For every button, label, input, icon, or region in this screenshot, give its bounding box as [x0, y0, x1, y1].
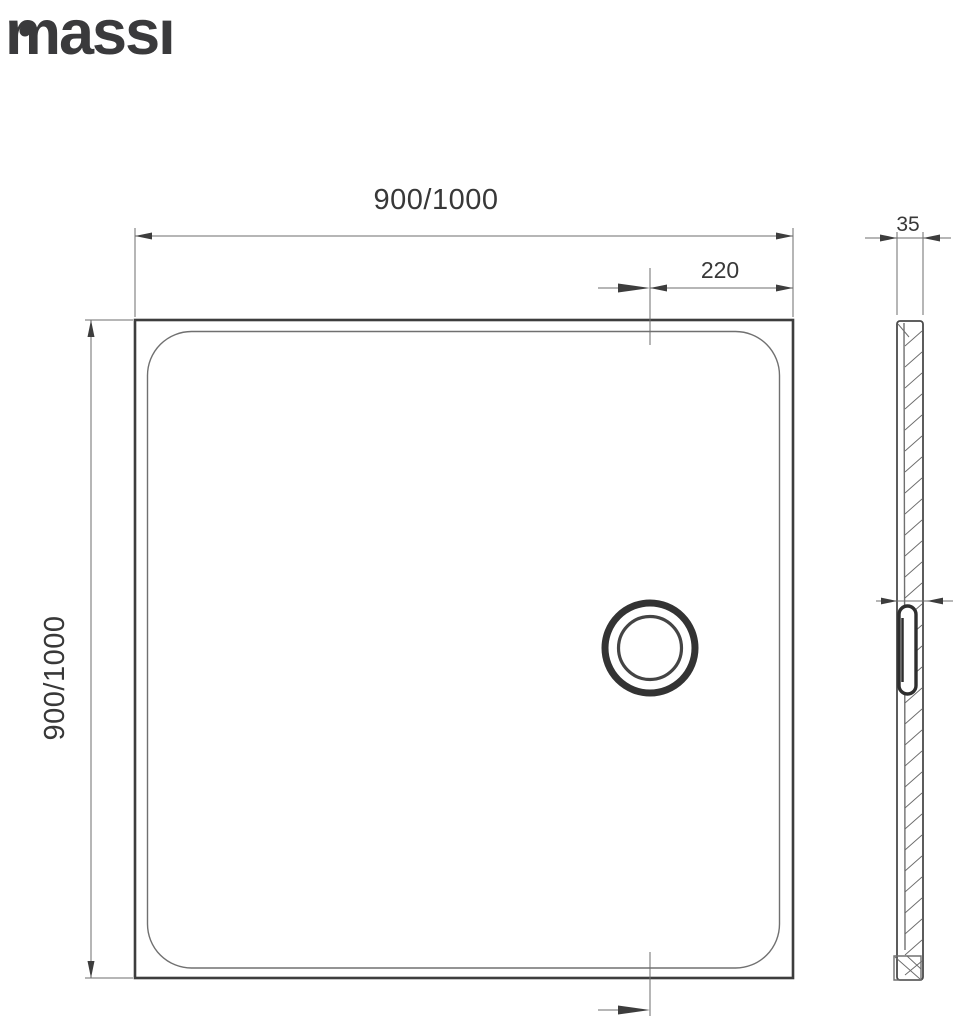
logo-dot-icon [20, 26, 31, 37]
drain-circle [605, 603, 695, 693]
drain-bottom-marker [598, 952, 650, 1016]
drain-offset-label: 220 [701, 257, 739, 283]
drain-level-marker [876, 598, 953, 605]
brand-logo-text: massı [5, 0, 174, 68]
technical-drawing-canvas: massı 900/1000 [0, 0, 953, 1020]
brand-logo: massı [5, 0, 174, 68]
dim-thickness: 35 [865, 213, 951, 315]
left-height-label: 900/1000 [39, 616, 71, 741]
top-view [135, 320, 793, 978]
dim-left-height: 900/1000 [39, 320, 133, 978]
thickness-label: 35 [896, 213, 919, 236]
drain-inner-ring [619, 617, 682, 680]
technical-drawing-page: massı 900/1000 [0, 0, 953, 1020]
top-width-label: 900/1000 [374, 184, 499, 216]
profile-foot [894, 956, 921, 980]
dim-top-width: 900/1000 [135, 184, 793, 317]
tray-inner-basin [148, 332, 780, 969]
side-view: 35 [865, 213, 953, 980]
drain-side-section [899, 606, 916, 694]
drain-axis-arrow-icon [618, 284, 650, 293]
drain-axis-arrow-icon [618, 1006, 650, 1015]
